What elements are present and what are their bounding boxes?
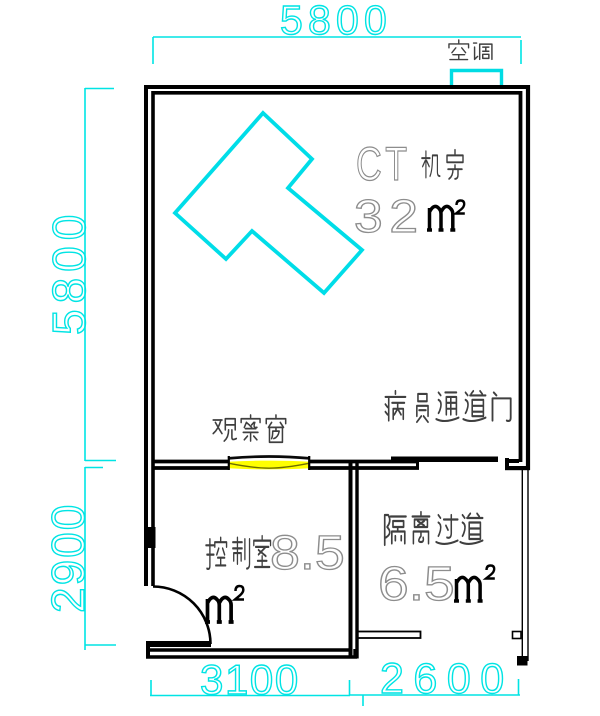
svg-text:2600: 2600 [380, 655, 514, 703]
svg-text:32: 32 [354, 191, 425, 242]
svg-text:5800: 5800 [280, 0, 392, 43]
svg-text:3100: 3100 [200, 656, 300, 703]
svg-text:CT: CT [356, 137, 410, 190]
svg-text:8.5: 8.5 [270, 526, 345, 580]
svg-text:5800: 5800 [43, 209, 95, 335]
svg-text:6.5: 6.5 [378, 556, 455, 610]
svg-text:2900: 2900 [42, 503, 94, 613]
